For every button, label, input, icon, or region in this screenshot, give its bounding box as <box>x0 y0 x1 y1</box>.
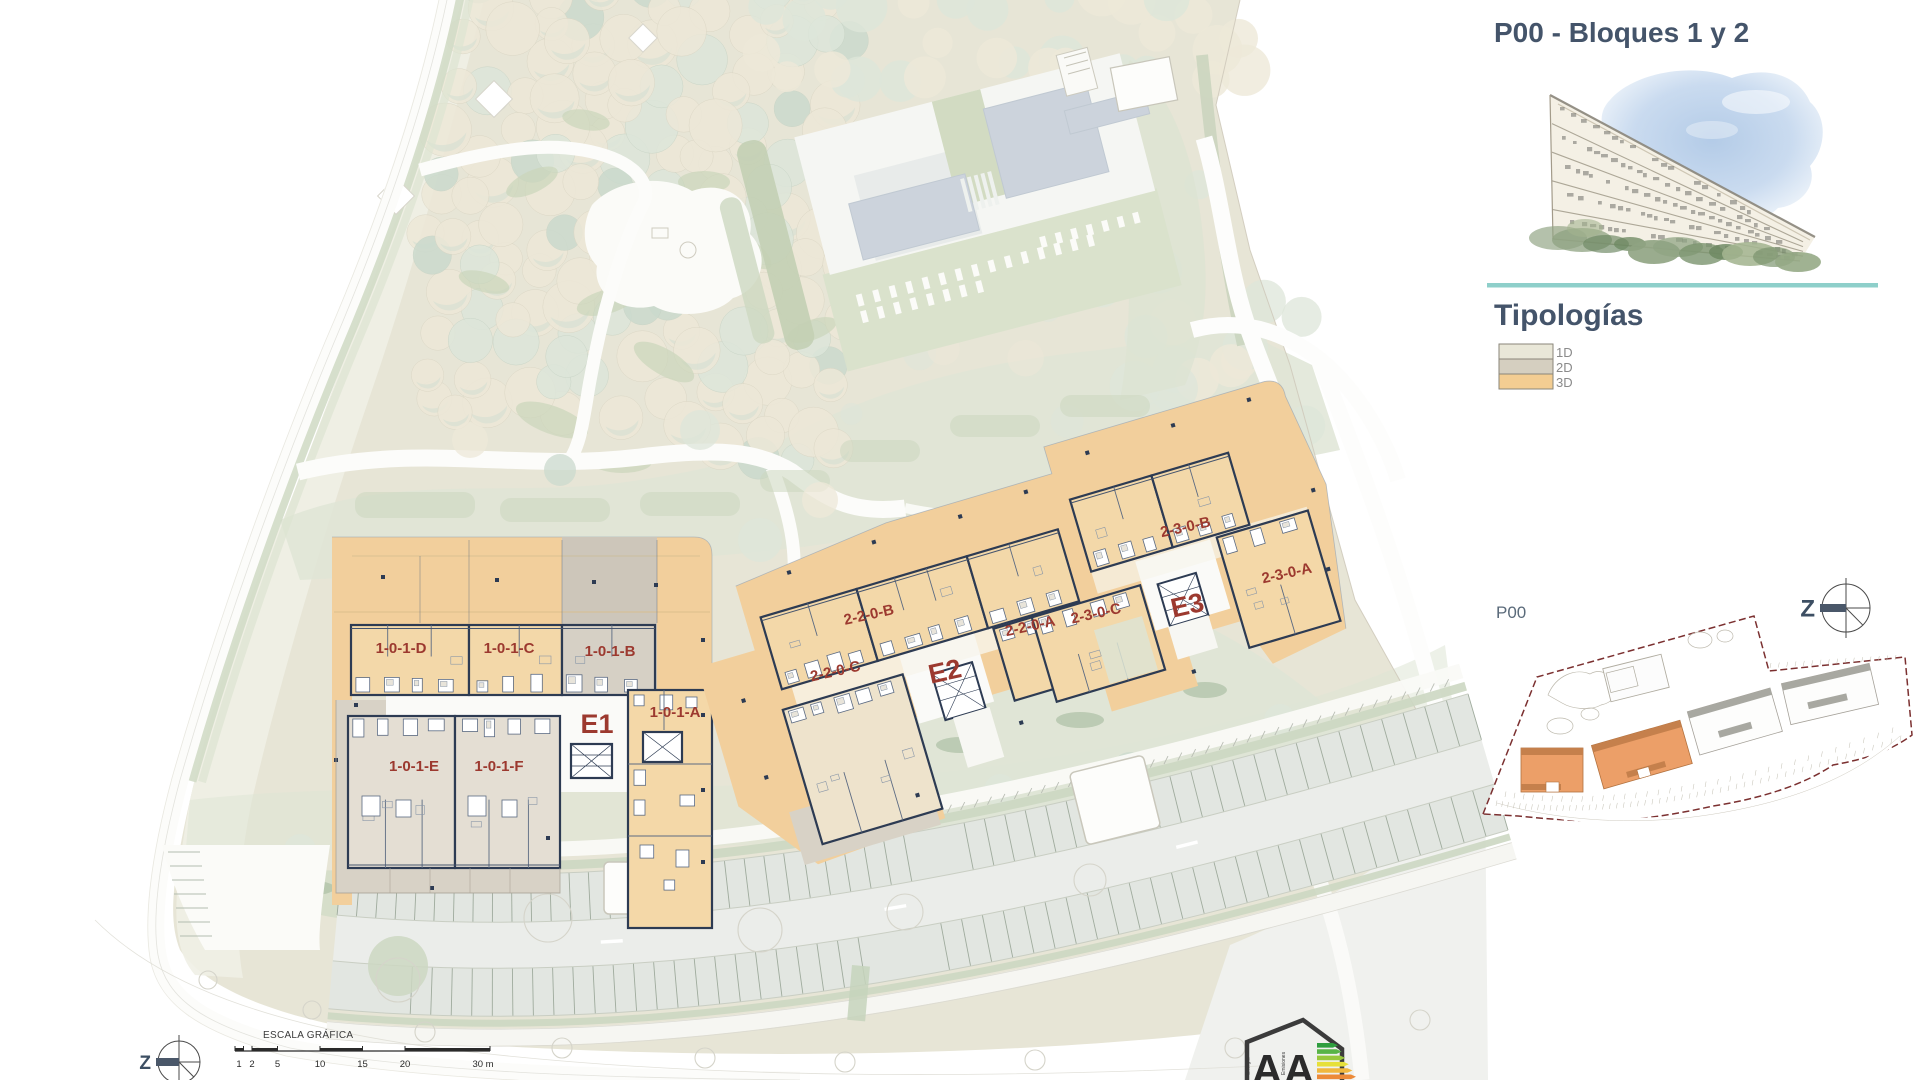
svg-text:2D: 2D <box>1556 360 1573 375</box>
svg-text:1-0-1-E: 1-0-1-E <box>389 758 439 775</box>
svg-text:1D: 1D <box>1556 345 1573 360</box>
svg-text:1-0-1-A: 1-0-1-A <box>650 704 701 721</box>
svg-text:30 m: 30 m <box>472 1059 493 1070</box>
svg-text:ESCALA GRÁFICA: ESCALA GRÁFICA <box>263 1028 353 1041</box>
svg-text:15: 15 <box>357 1059 368 1070</box>
svg-text:Z: Z <box>139 1053 151 1074</box>
svg-text:P00: P00 <box>1496 603 1526 622</box>
svg-text:1-0-1-D: 1-0-1-D <box>376 640 427 657</box>
svg-text:1-0-1-B: 1-0-1-B <box>585 643 636 660</box>
svg-text:A: A <box>1284 1046 1314 1080</box>
svg-text:10: 10 <box>315 1059 326 1070</box>
svg-text:A: A <box>1252 1046 1282 1080</box>
svg-text:1-0-1-F: 1-0-1-F <box>474 758 523 775</box>
svg-text:Emisiones: Emisiones <box>1281 1051 1287 1075</box>
svg-text:1-0-1-C: 1-0-1-C <box>484 640 535 657</box>
svg-text:1: 1 <box>236 1059 241 1070</box>
svg-text:5: 5 <box>275 1059 280 1070</box>
svg-text:Z: Z <box>1800 596 1815 623</box>
svg-text:Energía: Energía <box>1246 1057 1252 1075</box>
svg-text:E1: E1 <box>580 709 613 739</box>
svg-text:3D: 3D <box>1556 375 1573 390</box>
svg-text:20: 20 <box>400 1059 411 1070</box>
svg-text:P00 - Bloques 1 y 2: P00 - Bloques 1 y 2 <box>1494 17 1749 48</box>
svg-text:2: 2 <box>249 1059 254 1070</box>
svg-text:Tipologías: Tipologías <box>1494 299 1643 332</box>
